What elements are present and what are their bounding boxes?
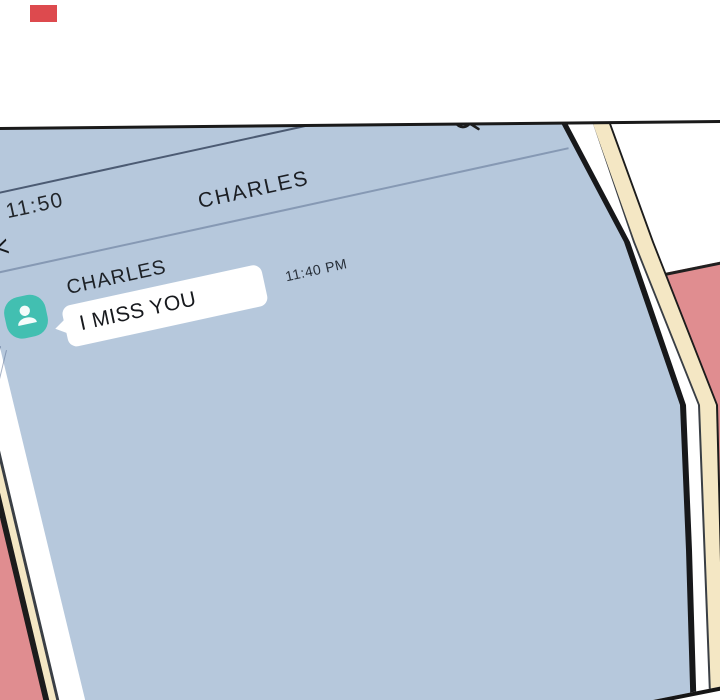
search-icon[interactable]: [449, 104, 482, 137]
person-icon: [10, 299, 42, 335]
comic-panel-scene: 11:50 < CHARLES: [0, 0, 720, 700]
bubble-tail-icon: [54, 320, 68, 336]
message-timestamp: 11:40 PM: [284, 255, 349, 284]
avatar[interactable]: [1, 292, 51, 342]
red-corner-mark: [30, 5, 57, 22]
message-text: I MISS YOU: [77, 287, 198, 335]
panel: 11:50 < CHARLES: [0, 0, 720, 700]
status-bar-time: 11:50: [4, 188, 66, 224]
